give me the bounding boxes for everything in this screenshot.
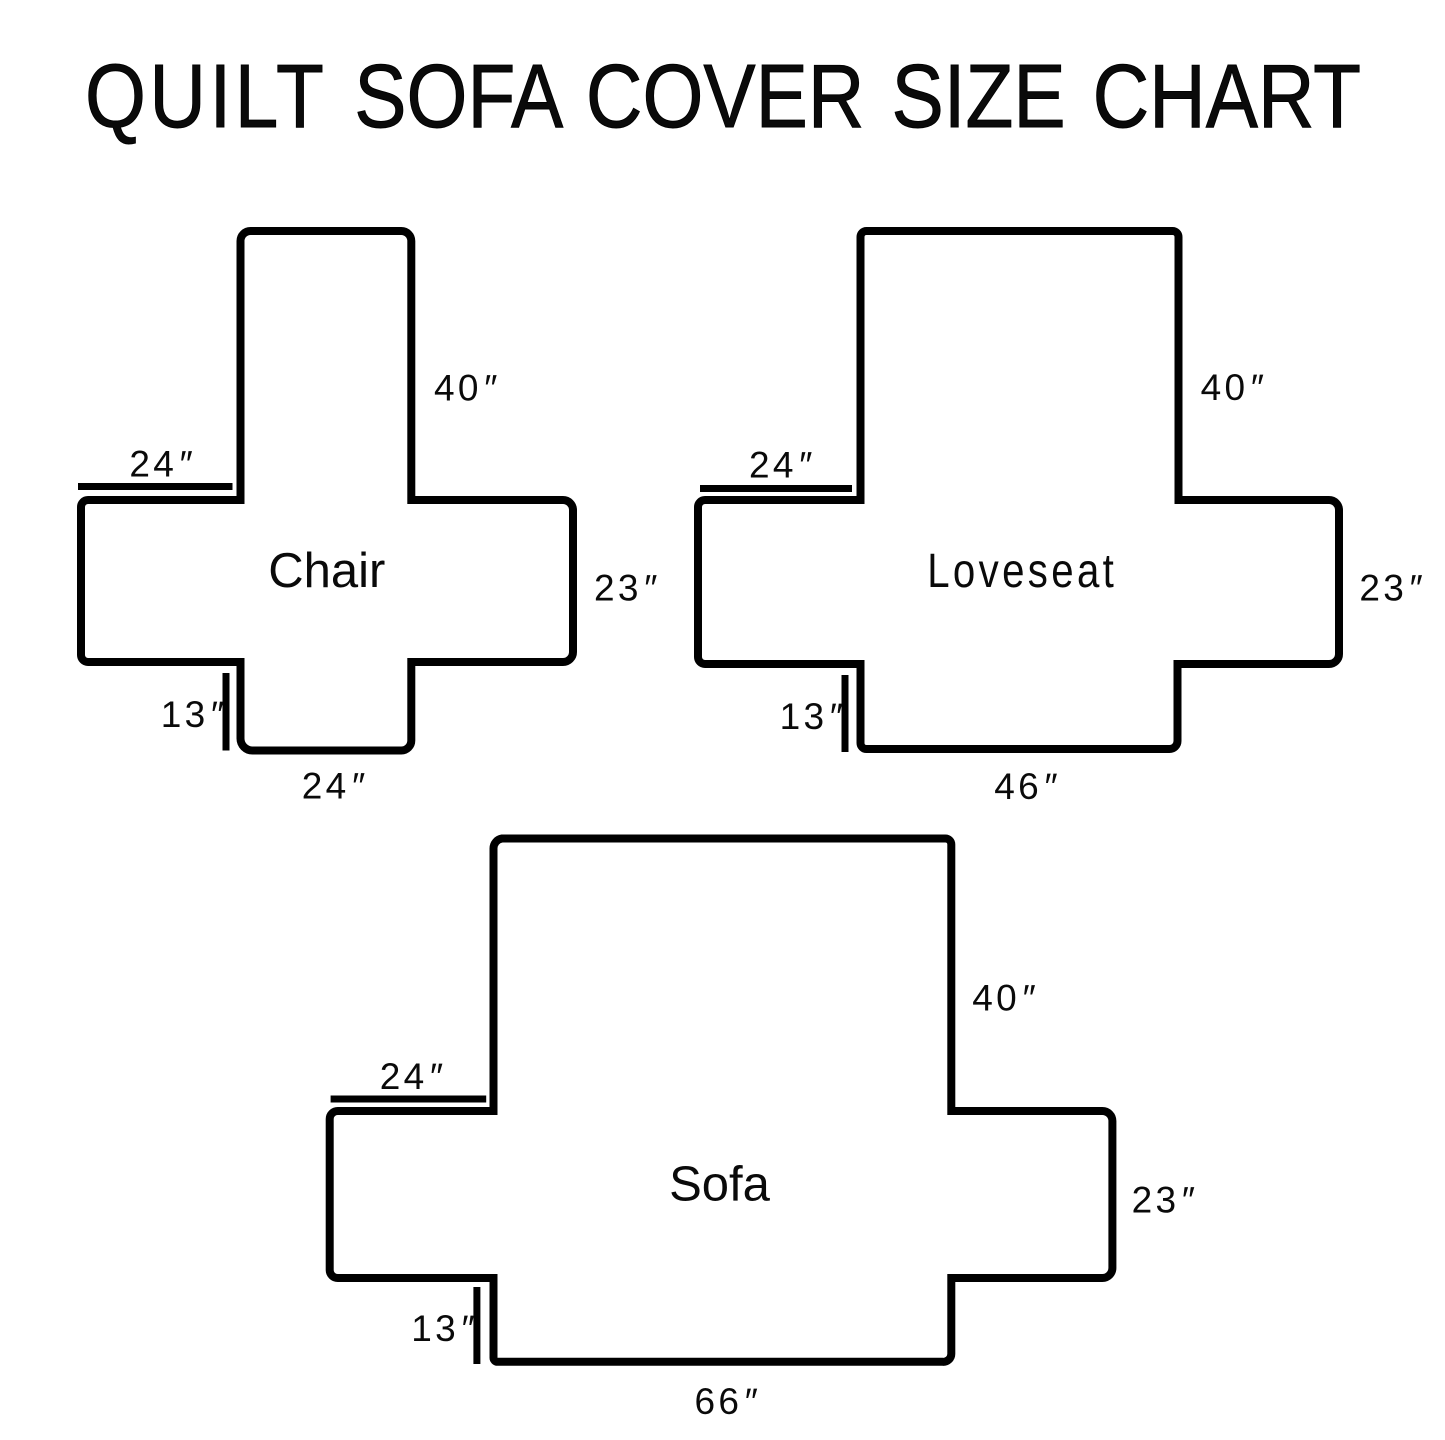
svg-text:Sofa: Sofa	[669, 1158, 771, 1212]
svg-text:40″: 40″	[1201, 367, 1264, 408]
svg-text:46″: 46″	[994, 766, 1057, 807]
svg-text:13″: 13″	[411, 1308, 474, 1349]
svg-text:24″: 24″	[129, 443, 192, 484]
svg-text:40″: 40″	[434, 367, 497, 408]
svg-text:13″: 13″	[161, 694, 224, 735]
svg-text:23″: 23″	[1359, 568, 1422, 609]
svg-text:23″: 23″	[594, 568, 657, 609]
svg-text:24″: 24″	[302, 765, 365, 806]
svg-text:66″: 66″	[695, 1381, 758, 1422]
svg-text:40″: 40″	[972, 977, 1035, 1018]
svg-text:13″: 13″	[780, 696, 843, 737]
svg-text:24″: 24″	[749, 445, 812, 486]
svg-text:QUILT SOFA COVER SIZE CHART: QUILT SOFA COVER SIZE CHART	[85, 47, 1361, 147]
svg-text:Loveseat: Loveseat	[927, 545, 1117, 598]
svg-text:24″: 24″	[380, 1056, 443, 1097]
svg-text:Chair: Chair	[268, 544, 385, 598]
svg-text:23″: 23″	[1132, 1180, 1195, 1221]
